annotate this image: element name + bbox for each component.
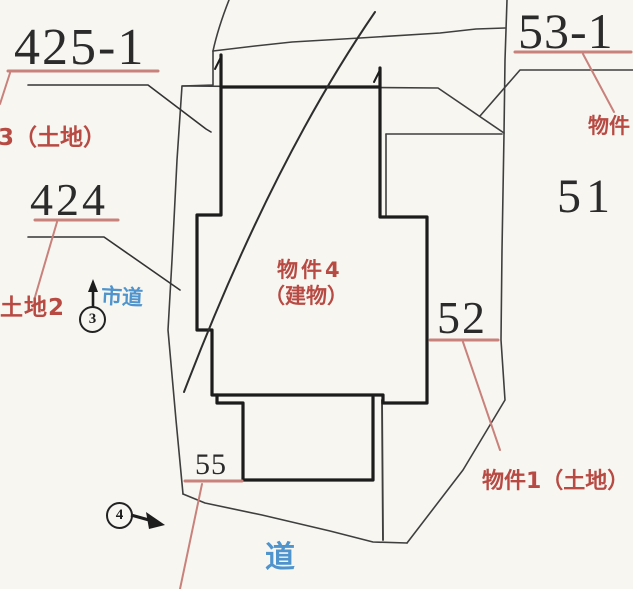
inner-line-north bbox=[182, 86, 504, 133]
survey-point-3-marker: 3 bbox=[79, 306, 106, 333]
city-road-label: 市道 bbox=[100, 286, 143, 309]
boundary-road-edge bbox=[183, 494, 407, 543]
survey-point-4-marker: 4 bbox=[106, 502, 133, 529]
inner-line-south bbox=[382, 400, 383, 540]
building-walls bbox=[197, 55, 427, 403]
note-lot-425-1: 3（土地） bbox=[0, 127, 106, 150]
right-arrow-icon bbox=[131, 512, 165, 529]
building-label-line2: （建物） bbox=[264, 286, 348, 307]
parcel-number-424: 424 bbox=[30, 177, 108, 223]
boundary-north bbox=[213, 28, 505, 51]
note-lot-53-1: 物件 bbox=[588, 116, 630, 137]
red-leader-425-1 bbox=[0, 73, 10, 104]
cadastral-map: 425-1 424 53-1 51 52 55 3（土地） 土地2 物件 物件1… bbox=[0, 0, 633, 589]
note-lot-52: 物件1（土地） bbox=[482, 471, 629, 493]
red-leader-424 bbox=[35, 222, 57, 297]
red-leader-55 bbox=[180, 484, 202, 589]
up-arrow-icon bbox=[88, 279, 98, 307]
parcel-number-53-1: 53-1 bbox=[518, 6, 614, 56]
red-leader-53-1 bbox=[583, 54, 614, 112]
parcel-number-55: 55 bbox=[195, 450, 227, 480]
parcel-boundary-lines bbox=[168, 0, 633, 543]
survey-point-3-number: 3 bbox=[89, 311, 97, 328]
parcel-number-51: 51 bbox=[557, 173, 615, 221]
neighbor-line-53 bbox=[480, 70, 633, 116]
parcel-number-425-1: 425-1 bbox=[14, 22, 145, 74]
building-label-line1: 物件4 bbox=[277, 260, 343, 281]
road-label: 道 bbox=[265, 543, 295, 573]
parcel-number-52: 52 bbox=[437, 295, 487, 341]
note-lot-424: 土地2 bbox=[0, 297, 65, 320]
boundary-east bbox=[407, 0, 507, 543]
red-leader-52 bbox=[463, 342, 500, 450]
building-annex bbox=[217, 395, 373, 480]
boundary-top-spur bbox=[213, 0, 229, 51]
survey-point-4-number: 4 bbox=[116, 507, 124, 524]
